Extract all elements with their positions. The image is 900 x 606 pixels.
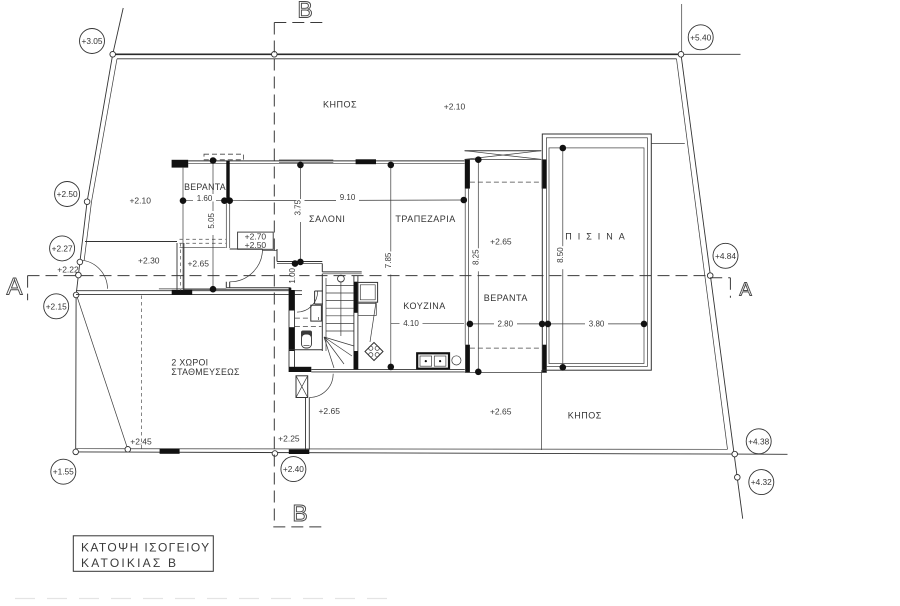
svg-text:9.10: 9.10	[340, 193, 356, 202]
svg-text:+2.65: +2.65	[187, 259, 209, 269]
svg-text:5.05: 5.05	[207, 212, 216, 228]
svg-text:+4.84: +4.84	[715, 251, 736, 261]
svg-text:+2.30: +2.30	[138, 256, 160, 266]
svg-text:+2.22: +2.22	[57, 265, 79, 275]
svg-text:ΠΙΣΙΝΑ: ΠΙΣΙΝΑ	[565, 232, 631, 242]
svg-text:A: A	[739, 278, 752, 299]
svg-text:+2.50: +2.50	[245, 240, 267, 250]
svg-text:+2.45: +2.45	[130, 437, 152, 447]
svg-text:+3.05: +3.05	[82, 36, 103, 46]
svg-text:+2.40: +2.40	[283, 464, 304, 474]
svg-text:3.80: 3.80	[589, 320, 605, 329]
svg-text:2.80: 2.80	[498, 320, 514, 329]
svg-text:+2.15: +2.15	[46, 301, 67, 311]
svg-text:3.75: 3.75	[293, 199, 302, 215]
svg-text:+2.65: +2.65	[490, 406, 512, 416]
svg-text:+2.10: +2.10	[129, 196, 151, 206]
svg-text:+2.10: +2.10	[444, 102, 466, 112]
svg-text:+2.65: +2.65	[318, 406, 340, 416]
svg-text:+1.55: +1.55	[53, 467, 74, 477]
svg-text:1.00: 1.00	[288, 267, 297, 283]
svg-text:+5.40: +5.40	[690, 32, 711, 42]
svg-text:+2.27: +2.27	[52, 243, 73, 253]
svg-text:+2.25: +2.25	[278, 433, 300, 443]
svg-text:1.60: 1.60	[197, 194, 213, 203]
svg-text:A: A	[6, 274, 22, 301]
svg-text:ΚΑΤΟΨΗ ΙΣΟΓΕΙΟΥ: ΚΑΤΟΨΗ ΙΣΟΓΕΙΟΥ	[81, 541, 211, 555]
svg-text:8.50: 8.50	[556, 247, 565, 263]
svg-text:ΣΑΛΟΝΙ: ΣΑΛΟΝΙ	[309, 214, 345, 224]
svg-text:+4.32: +4.32	[751, 477, 772, 487]
svg-text:+4.38: +4.38	[748, 436, 769, 446]
svg-text:8.25: 8.25	[471, 249, 480, 265]
svg-text:ΒΕΡΑΝΤΑ: ΒΕΡΑΝΤΑ	[184, 182, 226, 192]
svg-text:4.10: 4.10	[403, 319, 419, 328]
svg-text:ΣΤΑΘΜΕΥΣΕΩΣ: ΣΤΑΘΜΕΥΣΕΩΣ	[171, 367, 240, 377]
svg-text:ΤΡΑΠΕΖΑΡΙΑ: ΤΡΑΠΕΖΑΡΙΑ	[395, 214, 455, 224]
svg-text:ΚΟΥΖΙΝΑ: ΚΟΥΖΙΝΑ	[403, 301, 445, 311]
svg-text:7.85: 7.85	[384, 252, 393, 268]
svg-text:ΚΗΠΟΣ: ΚΗΠΟΣ	[323, 100, 357, 110]
svg-text:B: B	[292, 500, 307, 526]
svg-text:+2.65: +2.65	[490, 237, 512, 247]
svg-text:ΒΕΡΑΝΤΑ: ΒΕΡΑΝΤΑ	[484, 293, 528, 303]
svg-text:B: B	[297, 0, 312, 23]
svg-text:ΚΗΠΟΣ: ΚΗΠΟΣ	[568, 411, 602, 421]
svg-text:+2.50: +2.50	[57, 189, 78, 199]
svg-text:ΚΑΤΟΙΚΙΑΣ Β: ΚΑΤΟΙΚΙΑΣ Β	[81, 556, 178, 570]
